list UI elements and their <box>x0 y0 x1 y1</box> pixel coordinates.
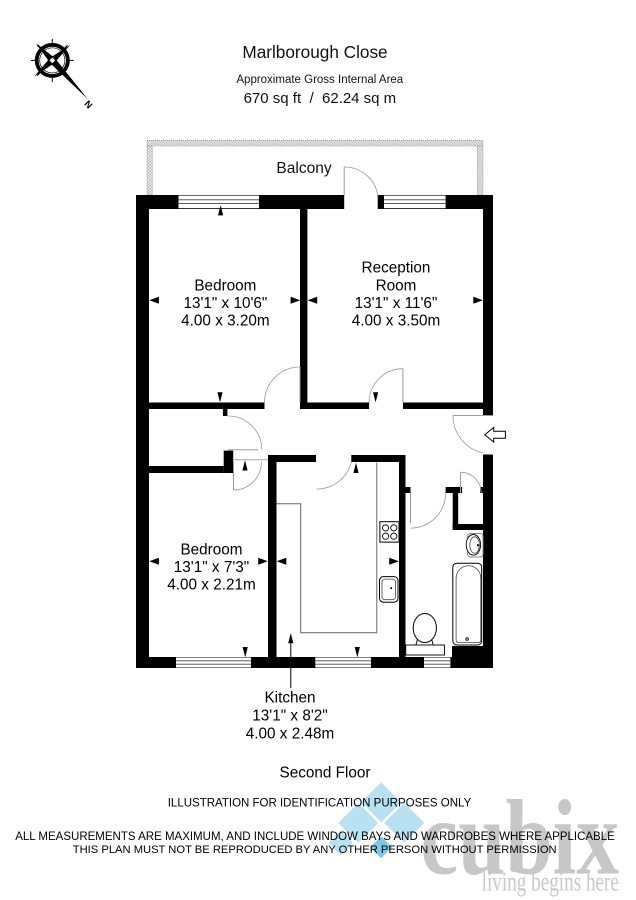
svg-text:13'1" x 8'2": 13'1" x 8'2" <box>252 707 327 724</box>
svg-text:THIS PLAN MUST NOT BE REPRODUC: THIS PLAN MUST NOT BE REPRODUCED BY ANY … <box>73 844 557 856</box>
svg-text:Approximate Gross Internal Are: Approximate Gross Internal Area <box>236 74 403 86</box>
svg-text:13'1" x 10'6": 13'1" x 10'6" <box>183 295 267 312</box>
svg-text:4.00 x 2.21m: 4.00 x 2.21m <box>167 577 255 594</box>
svg-text:ALL MEASUREMENTS ARE MAXIMUM,: ALL MEASUREMENTS ARE MAXIMUM, AND INCLUD… <box>15 831 615 843</box>
svg-text:Kitchen: Kitchen <box>264 689 315 706</box>
svg-text:13'1" x 7'3": 13'1" x 7'3" <box>174 559 249 576</box>
svg-text:4.00 x 3.50m: 4.00 x 3.50m <box>352 313 440 330</box>
svg-text:Bedroom: Bedroom <box>180 542 242 559</box>
svg-text:living begins here: living begins here <box>482 867 619 897</box>
svg-text:Reception: Reception <box>362 260 431 277</box>
svg-text:13'1" x 11'6": 13'1" x 11'6" <box>355 295 438 312</box>
svg-text:4.00 x 2.48m: 4.00 x 2.48m <box>246 726 334 743</box>
svg-text:Bedroom: Bedroom <box>194 277 256 294</box>
svg-text:Marlborough Close: Marlborough Close <box>242 42 387 62</box>
svg-text:4.00 x 3.20m: 4.00 x 3.20m <box>181 313 269 330</box>
svg-text:Second Floor: Second Floor <box>280 765 371 782</box>
svg-text:670 sq ft / 62.24 sq m: 670 sq ft / 62.24 sq m <box>244 90 397 107</box>
svg-text:Room: Room <box>376 277 417 294</box>
svg-text:ILLUSTRATION FOR IDENTIFICATIO: ILLUSTRATION FOR IDENTIFICATION PURPOSES… <box>168 798 472 810</box>
svg-text:Balcony: Balcony <box>276 160 331 177</box>
